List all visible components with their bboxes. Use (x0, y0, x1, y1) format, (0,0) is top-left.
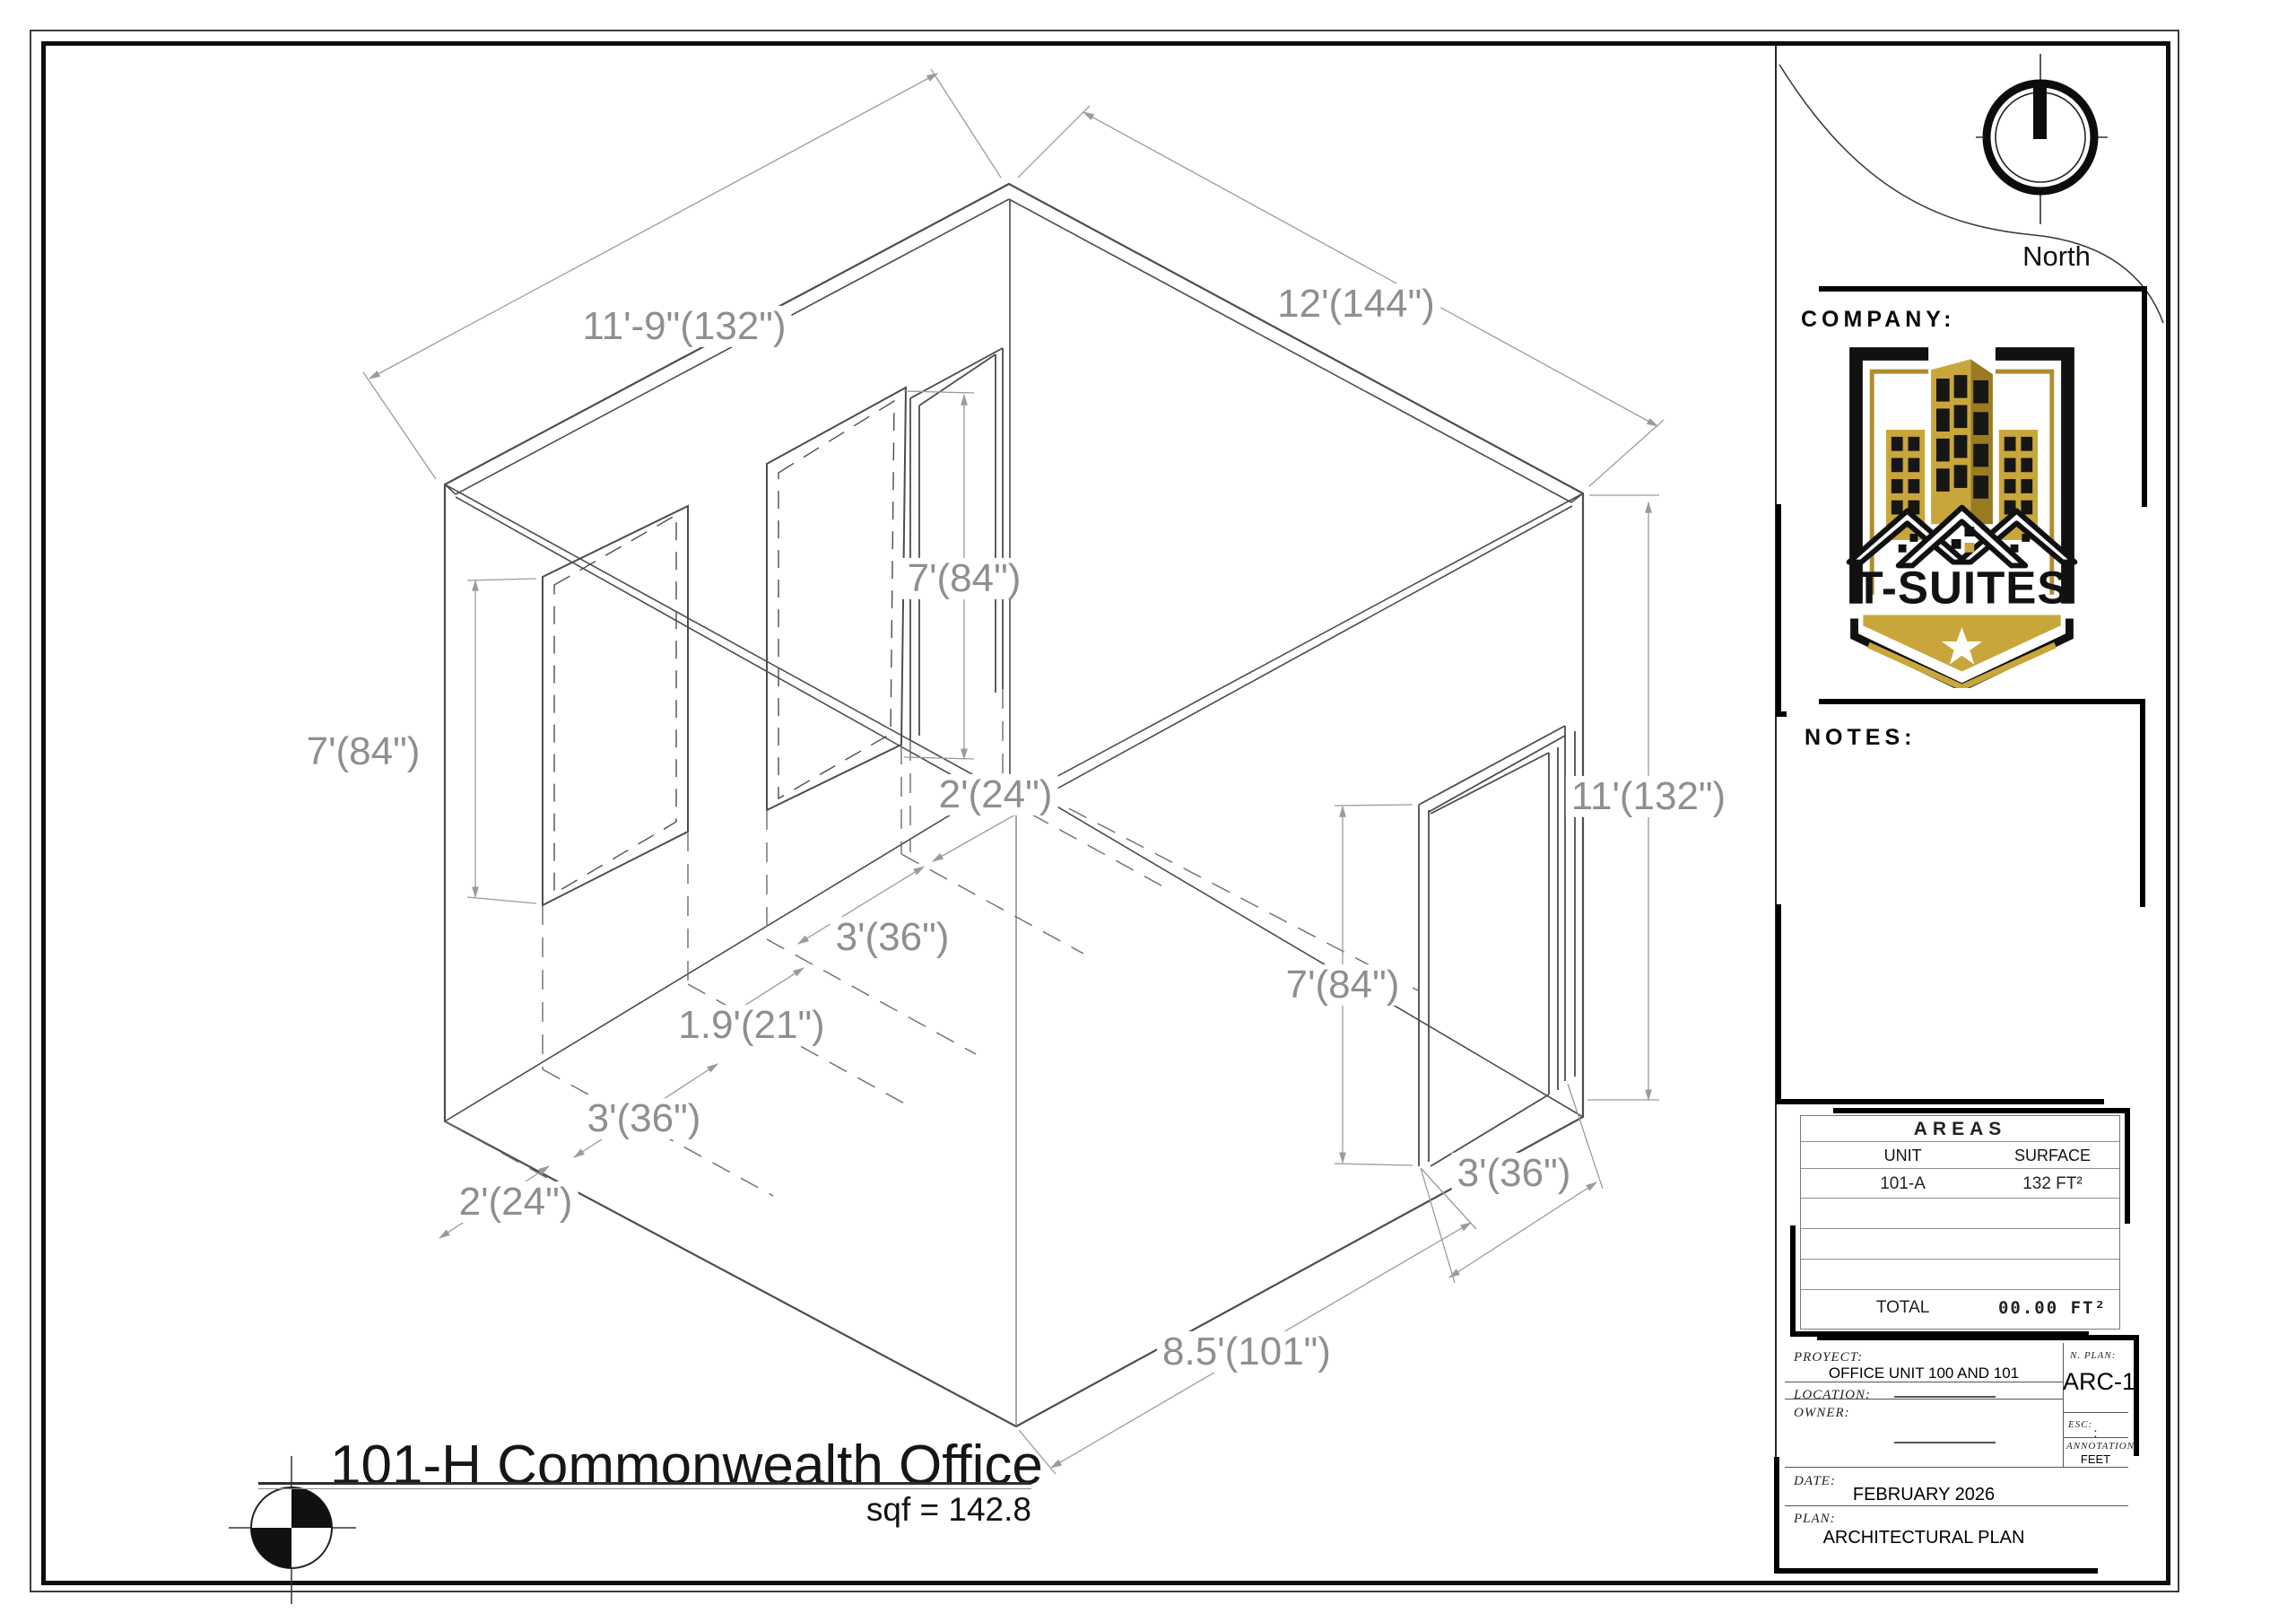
col-unit: UNIT (1801, 1142, 2005, 1169)
areas-header-row: UNIT SURFACE (1801, 1142, 2119, 1169)
back-door-opening (910, 348, 1003, 741)
north-label: North (1998, 240, 2115, 273)
dim-label-center-door-width: 2'(24") (934, 774, 1058, 815)
plan-value: ARCHITECTURAL PLAN (1785, 1528, 2063, 1548)
areas-title: AREAS (1801, 1116, 2119, 1142)
total-value: 00.00 FT² (1986, 1290, 2119, 1326)
annotation-value: FEET (2063, 1452, 2128, 1466)
plan-label: PLAN: (1794, 1512, 1836, 1527)
areas-data-row: 101-A 132 FT² (1801, 1169, 2119, 1199)
areas-empty-row (1801, 1199, 2119, 1229)
location-underline (1894, 1382, 1996, 1398)
north-compass-icon (1960, 49, 2121, 229)
areas-table: AREAS UNIT SURFACE 101-A 132 FT² TOTAL 0… (1800, 1115, 2120, 1330)
owner-underline (1894, 1428, 1996, 1443)
areas-empty-row (1801, 1260, 2119, 1290)
dim-label-window-gap: 1.9'(21") (673, 1005, 830, 1046)
nplan-label: N. PLAN: (2070, 1350, 2116, 1361)
sheet: 11'-9"(132") 12'(144") 7'(84") 2'(24") 3… (0, 0, 2296, 1622)
brand-text: T-SUITES (1856, 562, 2069, 614)
window-right (767, 388, 906, 810)
areas-empty-row (1801, 1229, 2119, 1260)
areas-total-row: TOTAL 00.00 FT² (1801, 1290, 2119, 1328)
dim-label-left-window-height: 7'(84") (301, 731, 426, 772)
bracket-bottom-left (1776, 904, 2104, 1104)
unit-cell: 101-A (1801, 1169, 2005, 1199)
drawing-area-text: sqf = 142.8 (834, 1491, 1031, 1529)
company-logo: T-SUITES (1830, 334, 2094, 688)
annotation-label: ANNOTATION: (2066, 1441, 2139, 1452)
surface-cell: 132 FT² (1986, 1169, 2119, 1199)
company-block: COMPANY: (1787, 294, 2136, 709)
proyect-label: PROYECT: (1794, 1350, 1863, 1365)
project-info-block: PROYECT: OFFICE UNIT 100 AND 101 LOCATIO… (1785, 1343, 2128, 1565)
dim-label-center-window-width: 3'(36") (831, 917, 955, 958)
window-left (543, 506, 688, 905)
dim-label-back-door-height: 7'(84") (902, 558, 1027, 599)
notes-block: NOTES: (1787, 707, 2135, 1096)
dim-label-front-wall-length: 8.5'(101") (1157, 1331, 1336, 1373)
dim-label-front-door-height: 7'(84") (1281, 964, 1405, 1006)
dim-label-left-window-width: 3'(36") (582, 1098, 707, 1139)
company-header: COMPANY: (1801, 307, 1955, 333)
date-value: FEBRUARY 2026 (1785, 1485, 2063, 1505)
dim-label-left-end-gap: 2'(24") (454, 1182, 578, 1223)
dim-label-front-door-width: 3'(36") (1452, 1153, 1577, 1194)
total-label: TOTAL (1801, 1290, 2005, 1326)
location-label: LOCATION: (1794, 1388, 1871, 1403)
front-door-frame (1419, 726, 1575, 1166)
dim-label-top-left: 11'-9"(132") (577, 306, 791, 347)
proyect-value: OFFICE UNIT 100 AND 101 (1785, 1365, 2063, 1382)
dim-label-right-wall-height: 11'(132") (1566, 776, 1731, 817)
title-underline (258, 1482, 1031, 1489)
front-door-panel (1431, 747, 1558, 1166)
nplan-value: ARC-1 (2063, 1368, 2128, 1396)
owner-label: OWNER: (1794, 1406, 1850, 1421)
col-surface: SURFACE (1986, 1142, 2119, 1169)
notes-header: NOTES: (1805, 725, 1916, 751)
dim-label-top-right: 12'(144") (1272, 283, 1440, 325)
